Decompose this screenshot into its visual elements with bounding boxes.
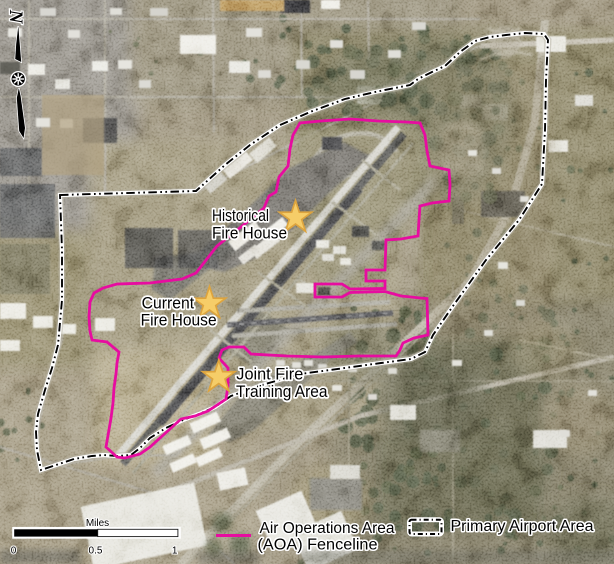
svg-text:1: 1 xyxy=(172,546,178,557)
svg-text:Training Area: Training Area xyxy=(236,382,328,401)
svg-text:Fire House: Fire House xyxy=(141,311,217,330)
svg-text:Joint Fire: Joint Fire xyxy=(236,365,303,384)
svg-text:Historical: Historical xyxy=(212,206,269,225)
svg-text:0: 0 xyxy=(11,546,17,557)
svg-text:0.5: 0.5 xyxy=(89,546,103,557)
svg-text:N: N xyxy=(5,9,26,25)
svg-text:Fire House: Fire House xyxy=(212,223,287,242)
svg-text:Primary Airport Area: Primary Airport Area xyxy=(451,518,594,535)
svg-text:(AOA) Fenceline: (AOA) Fenceline xyxy=(258,536,378,553)
svg-text:Air Operations Area: Air Operations Area xyxy=(260,520,395,537)
